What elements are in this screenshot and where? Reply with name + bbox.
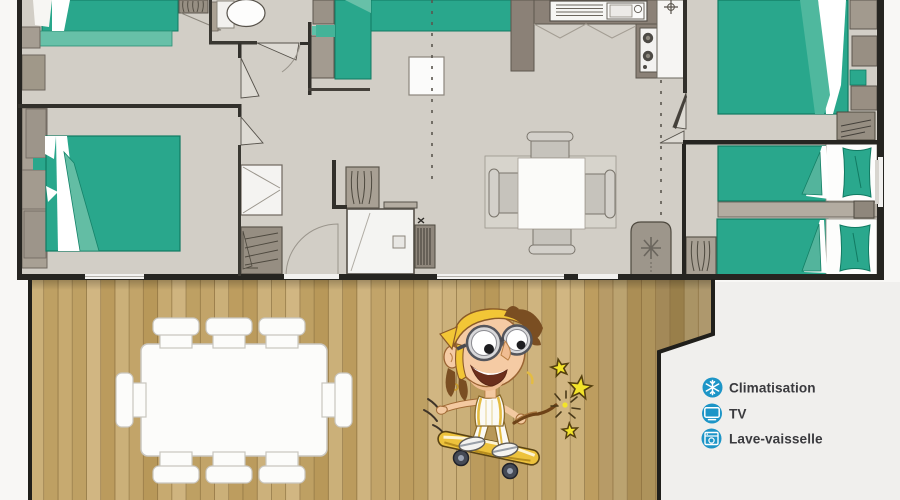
svg-text:Lave-vaisselle: Lave-vaisselle bbox=[729, 432, 823, 447]
svg-text:Climatisation: Climatisation bbox=[729, 381, 816, 396]
svg-text:TV: TV bbox=[729, 407, 747, 422]
